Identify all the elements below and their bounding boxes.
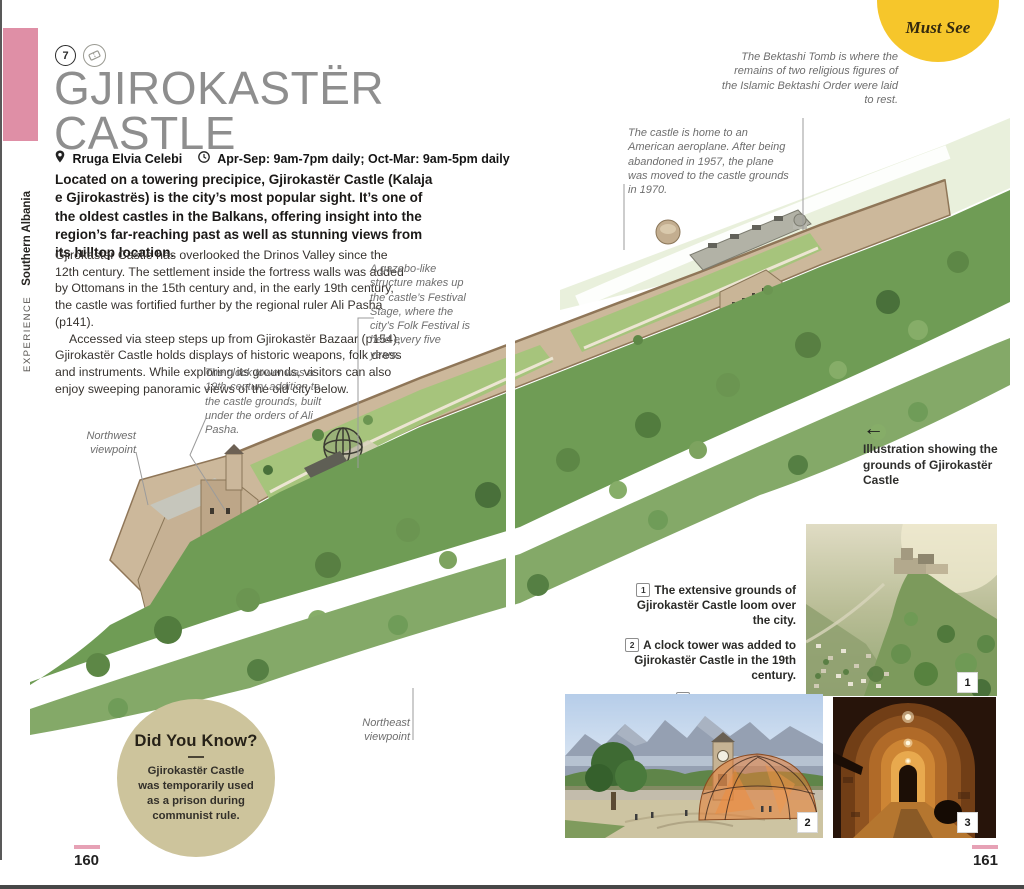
photo-festival-stage bbox=[565, 694, 823, 838]
photo-badge-2: 2 bbox=[797, 812, 818, 833]
caption-item-2: 2A clock tower was added to Gjirokastër … bbox=[622, 638, 796, 684]
location-pin-icon bbox=[55, 150, 65, 163]
caption-item-1: 1The extensive grounds of Gjirokastër Ca… bbox=[622, 583, 796, 629]
page-edge-bottom bbox=[0, 885, 1024, 889]
body-paragraph-1: Gjirokastër Castle has overlooked the Dr… bbox=[55, 247, 409, 331]
annotation-aeroplane: The castle is home to an American aeropl… bbox=[628, 126, 794, 197]
photo-aerial-city bbox=[806, 524, 997, 696]
bektashi-tomb bbox=[793, 214, 807, 229]
arrow-left-icon: ← bbox=[863, 418, 1003, 439]
page-edge-left bbox=[0, 0, 2, 860]
page-marker-left bbox=[74, 845, 100, 849]
sidebar-vertical-label: EXPERIENCE Southern Albania bbox=[15, 142, 39, 372]
did-you-know-circle: Did You Know? Gjirokastër Castle was tem… bbox=[117, 699, 275, 857]
practical-info: Rruga Elvia Celebi Apr-Sep: 9am-7pm dail… bbox=[55, 150, 510, 166]
page-gutter bbox=[506, 300, 515, 740]
caption-number-2: 2 bbox=[625, 638, 639, 652]
annotation-northeast-viewpoint: Northeast viewpoint bbox=[350, 716, 410, 745]
page-number-left: 160 bbox=[74, 852, 99, 869]
must-see-label: Must See bbox=[906, 18, 971, 38]
caption-number-1: 1 bbox=[636, 583, 650, 597]
address: Rruga Elvia Celebi bbox=[72, 152, 182, 166]
annotation-clock-tower: The clock tower was a 19th-century addit… bbox=[205, 366, 333, 437]
annotation-northwest-viewpoint: Northwest viewpoint bbox=[86, 429, 136, 458]
photo-badge-1: 1 bbox=[957, 672, 978, 693]
page-title: GJIROKASTËR CASTLE bbox=[54, 66, 384, 156]
page-marker-right bbox=[972, 845, 998, 849]
did-you-know-text: Gjirokastër Castle was temporarily used … bbox=[137, 764, 255, 824]
sight-number: 7 bbox=[62, 50, 68, 62]
page-number-right: 161 bbox=[962, 852, 998, 869]
annotation-bektashi-tomb: The Bektashi Tomb is where the remains o… bbox=[716, 50, 898, 107]
title-line1: GJIROKASTËR bbox=[54, 66, 384, 111]
clock-tower bbox=[226, 454, 242, 490]
did-you-know-title: Did You Know? bbox=[135, 732, 258, 751]
illustration-caption: ← Illustration showing the grounds of Gj… bbox=[863, 418, 1003, 489]
opening-hours: Apr-Sep: 9am-7pm daily; Oct-Mar: 9am-5pm… bbox=[217, 152, 509, 166]
opening-hours-icon bbox=[198, 151, 210, 163]
sidebar-region: Southern Albania bbox=[21, 191, 33, 286]
sidebar-section: EXPERIENCE bbox=[22, 296, 33, 372]
guidebook-spread: EXPERIENCE Southern Albania 7 GJIROKASTË… bbox=[0, 0, 1024, 889]
did-you-know-divider bbox=[188, 756, 204, 758]
photo-badge-3: 3 bbox=[957, 812, 978, 833]
sidebar-color-tab bbox=[3, 28, 38, 141]
annotation-festival-stage: A gazebo-like structure makes up the cas… bbox=[370, 262, 472, 362]
